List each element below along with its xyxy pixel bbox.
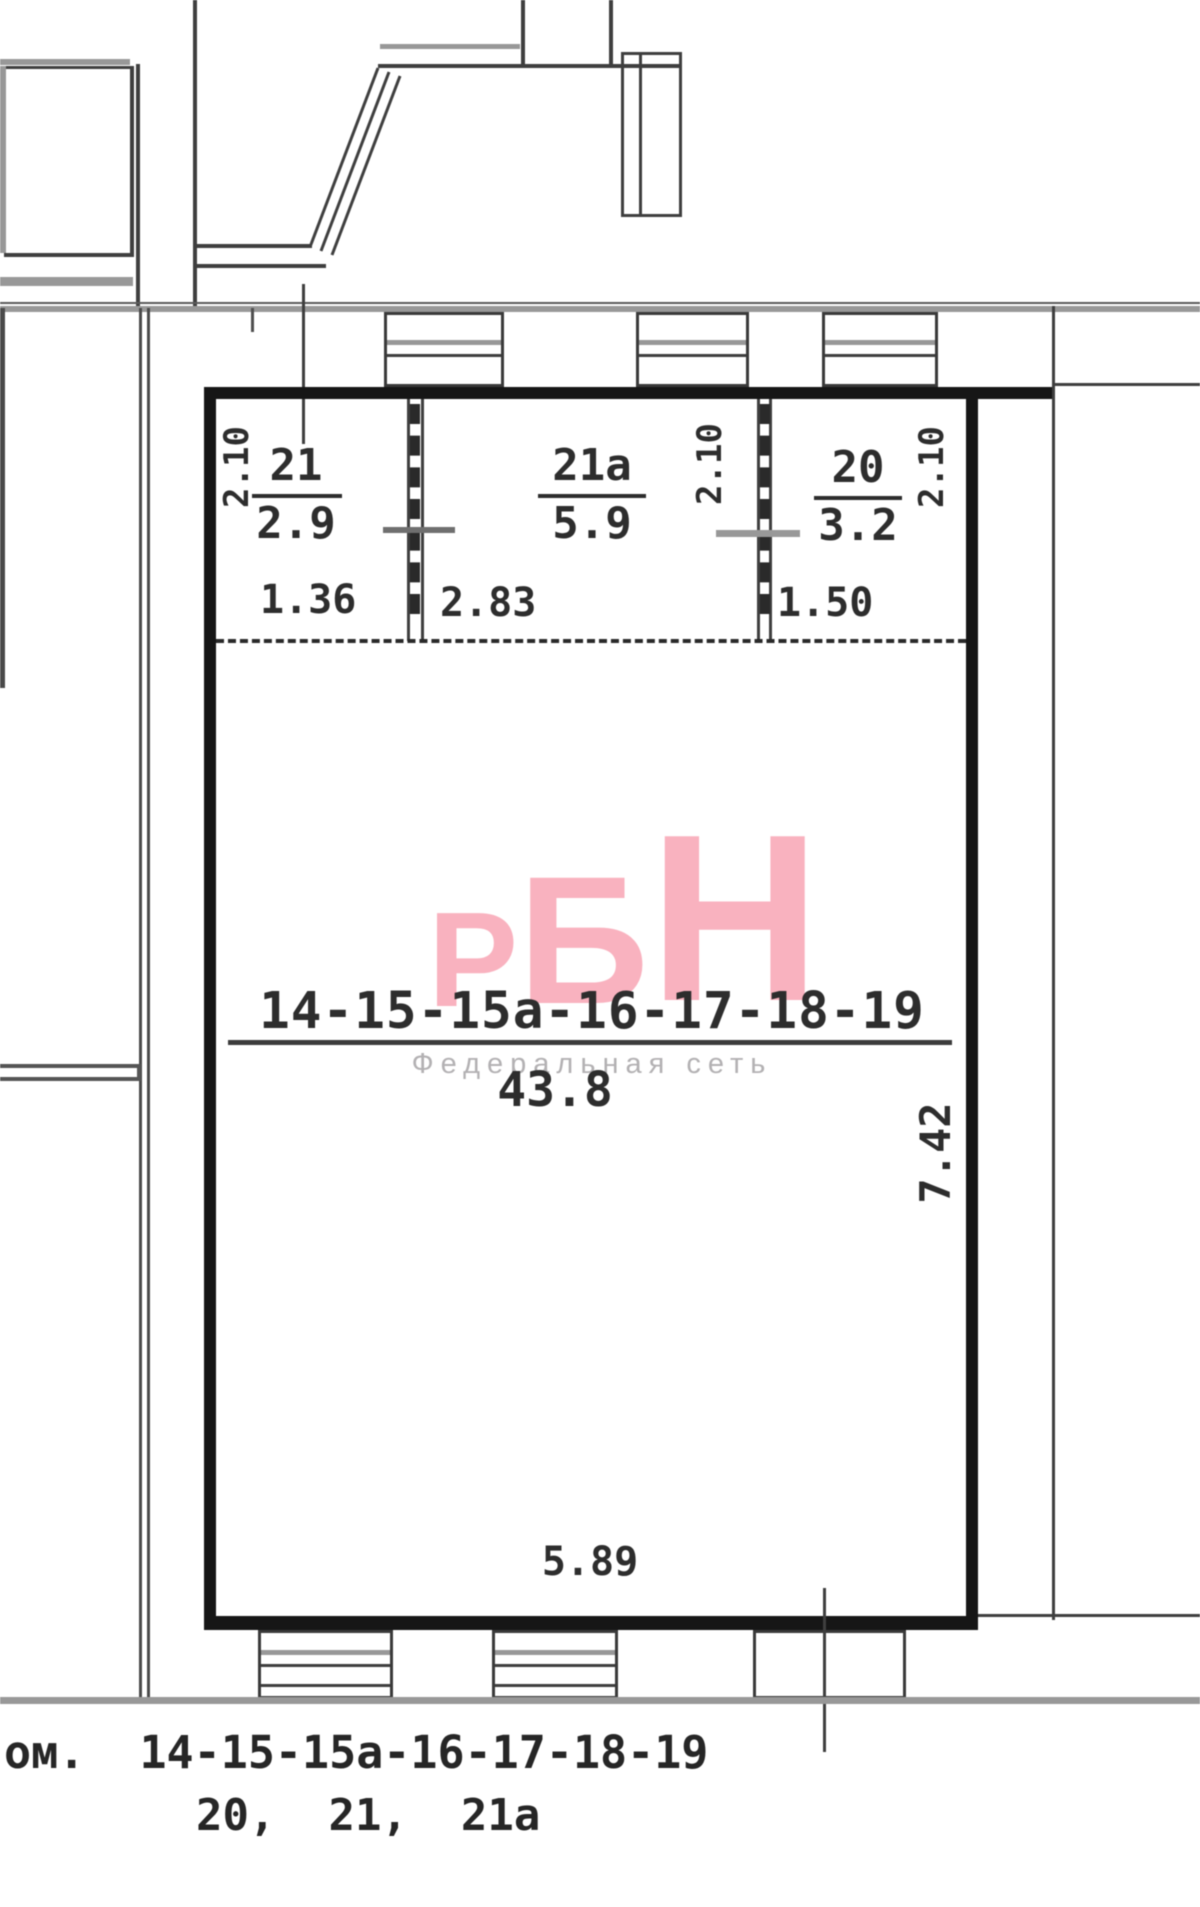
neighbor-wall (4, 253, 133, 257)
main-room-area: 43.8 (355, 1066, 755, 1114)
room-21a-width-dim: 2.83 (440, 583, 536, 623)
neighbor-wall (0, 66, 133, 69)
neighbor-wall (0, 308, 5, 688)
neighbor-wall (521, 0, 525, 66)
window-sill-line (495, 1650, 615, 1655)
unit-wall-left (204, 387, 216, 1630)
window-sill-line (495, 1684, 615, 1687)
dashed-partition-line (216, 639, 966, 643)
neighbor-wall (1052, 306, 1055, 1620)
neighbor-wall (978, 1614, 1200, 1617)
window-sill-line (387, 354, 501, 357)
doorway-symbol (753, 1630, 906, 1699)
neighbor-wall (195, 264, 326, 268)
neighbor-wall (0, 1064, 141, 1068)
partition-hatch (410, 404, 420, 614)
caption-line2: 20, 21, 21а (196, 1794, 540, 1838)
window-sill-line (387, 340, 501, 345)
window-symbol (636, 312, 749, 387)
neighbor-wall (137, 1064, 141, 1081)
window-sill-line (825, 340, 935, 345)
partition-wall (421, 399, 424, 641)
neighbor-wall (380, 44, 520, 49)
unit-wall-bottom (204, 1616, 978, 1630)
room-20-area: 3.2 (808, 504, 908, 548)
unit-wall-right (966, 387, 978, 1630)
window-sill-line (639, 354, 746, 357)
neighbor-wall (609, 0, 613, 66)
main-room-number: 14-15-15а-16-17-18-19 (230, 986, 954, 1037)
neighbor-wall (195, 244, 312, 248)
window-sill-line (495, 1664, 615, 1667)
room-21a-height-dim: 2.10 (693, 422, 727, 506)
room-20-width-dim: 1.50 (777, 583, 873, 623)
dimension-extension-line (823, 1588, 826, 1752)
neighbor-wall (621, 52, 682, 55)
dimension-tick (383, 527, 455, 533)
dimension-extension-line (302, 284, 305, 444)
neighbor-wall (621, 54, 624, 216)
window-symbol (384, 312, 504, 387)
room-21-height-dim: 2.10 (220, 425, 254, 509)
main-room-underline (228, 1040, 952, 1045)
room-21-width-dim: 1.36 (260, 580, 356, 620)
room-21a-area: 5.9 (532, 502, 652, 546)
dimension-tick (251, 308, 254, 332)
bottom-corridor-line (0, 1697, 1200, 1704)
room-21-number: 21 (246, 444, 346, 488)
neighbor-wall (193, 0, 197, 306)
partition-hatch (760, 404, 770, 614)
neighbor-wall (147, 308, 150, 1699)
neighbor-wall (621, 214, 682, 217)
neighbor-wall (136, 64, 140, 306)
window-sill-line (261, 1664, 390, 1667)
corridor-wall-line (0, 306, 1200, 312)
neighbor-wall (0, 59, 130, 65)
window-sill-line (825, 354, 935, 357)
main-room-width-dim: 5.89 (490, 1542, 690, 1582)
neighbor-wall (378, 64, 682, 68)
main-room-depth-dim: 7.42 (915, 1093, 957, 1213)
window-sill-line (261, 1684, 390, 1687)
unit-wall-top (204, 387, 1052, 399)
neighbor-wall (679, 54, 682, 216)
floor-plan: 21 2.9 2.10 1.36 21а 5.9 2.10 2.83 20 3.… (0, 0, 1200, 1907)
window-symbol (822, 312, 938, 387)
neighbor-wall (130, 66, 134, 257)
window-sill-line (639, 340, 746, 345)
neighbor-wall (0, 66, 6, 253)
neighbor-wall (139, 308, 142, 1699)
caption-line1: ом. 14-15-15а-16-17-18-19 (4, 1730, 708, 1775)
neighbor-wall (0, 1077, 141, 1081)
corridor-wall-line (0, 302, 1200, 304)
dimension-tick (716, 530, 800, 537)
stairs-diagonal-lines (296, 60, 416, 260)
room-20-height-dim: 2.10 (915, 425, 949, 509)
neighbor-wall (1052, 383, 1200, 386)
room-21a-number: 21а (532, 444, 652, 488)
window-sill-line (261, 1650, 390, 1655)
neighbor-wall (639, 54, 642, 216)
room-20-number: 20 (808, 446, 908, 490)
neighbor-wall (0, 277, 133, 286)
room-21-area: 2.9 (246, 502, 346, 546)
